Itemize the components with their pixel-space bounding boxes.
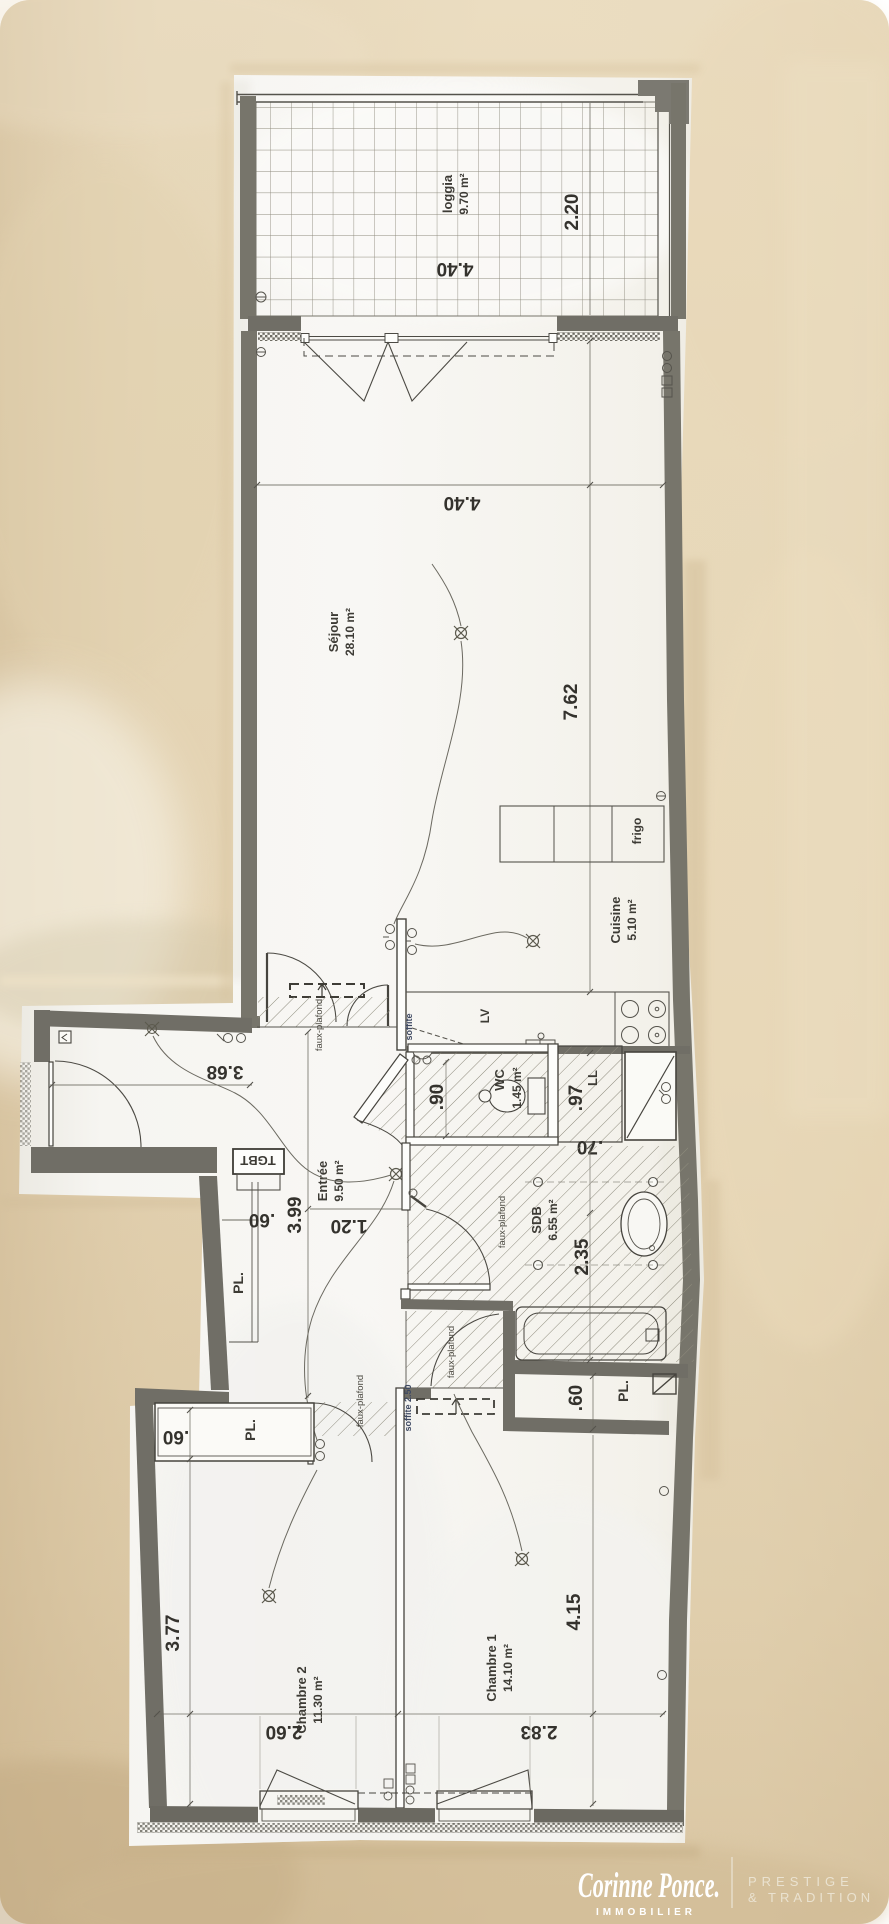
svg-text:TGBT: TGBT [240, 1153, 275, 1168]
svg-text:.90: .90 [427, 1084, 448, 1110]
svg-text:14.10 m²: 14.10 m² [501, 1644, 515, 1692]
svg-text:1.20: 1.20 [331, 1215, 368, 1236]
svg-text:SDB: SDB [529, 1206, 544, 1233]
svg-text:WC: WC [492, 1069, 507, 1091]
svg-text:frigo: frigo [630, 818, 644, 845]
svg-text:.60: .60 [249, 1209, 275, 1230]
svg-text:4.40: 4.40 [444, 492, 481, 513]
svg-text:2.60: 2.60 [266, 1721, 303, 1742]
svg-text:28.10 m²: 28.10 m² [343, 608, 357, 656]
svg-text:Corinne Ponce.: Corinne Ponce. [578, 1865, 720, 1905]
svg-text:2.83: 2.83 [521, 1721, 558, 1742]
svg-text:IMMOBILIER: IMMOBILIER [596, 1907, 696, 1918]
svg-text:.60: .60 [566, 1385, 587, 1411]
svg-text:faux-plafond: faux-plafond [314, 999, 325, 1051]
svg-text:faux-plafond: faux-plafond [355, 1375, 366, 1427]
svg-text:Entrée: Entrée [315, 1161, 330, 1201]
svg-text:.60: .60 [163, 1426, 189, 1447]
svg-text:1.45 m²: 1.45 m² [510, 1067, 524, 1108]
svg-text:Chambre 1: Chambre 1 [484, 1634, 499, 1701]
svg-text:LV: LV [478, 1009, 492, 1023]
svg-text:5.10 m²: 5.10 m² [625, 899, 639, 940]
svg-text:4.15: 4.15 [564, 1593, 585, 1630]
svg-text:2.35: 2.35 [572, 1238, 593, 1275]
svg-text:3.77: 3.77 [163, 1615, 184, 1652]
svg-text:3.99: 3.99 [285, 1197, 306, 1234]
svg-text:PL.: PL. [615, 1380, 631, 1402]
svg-text:11.30 m²: 11.30 m² [311, 1676, 325, 1723]
svg-text:6.55 m²: 6.55 m² [546, 1199, 560, 1240]
svg-text:loggia: loggia [440, 174, 455, 213]
svg-text:7.62: 7.62 [561, 684, 582, 721]
svg-text:9.70 m²: 9.70 m² [457, 173, 471, 214]
svg-text:PL.: PL. [242, 1419, 258, 1441]
svg-text:PRESTIGE: PRESTIGE [748, 1874, 854, 1889]
svg-text:faux-plafond: faux-plafond [497, 1196, 508, 1248]
svg-text:Séjour: Séjour [326, 612, 341, 652]
svg-text:2.20: 2.20 [562, 194, 583, 231]
svg-text:.97: .97 [566, 1085, 587, 1111]
svg-text:4.40: 4.40 [437, 258, 474, 279]
svg-text:Cuisine: Cuisine [608, 897, 623, 944]
svg-text:PL.: PL. [230, 1272, 246, 1294]
svg-text:& TRADITION: & TRADITION [748, 1890, 874, 1905]
svg-text:3.68: 3.68 [207, 1061, 244, 1082]
svg-text:LL: LL [585, 1070, 600, 1086]
svg-text:soffite: soffite [404, 1014, 414, 1041]
